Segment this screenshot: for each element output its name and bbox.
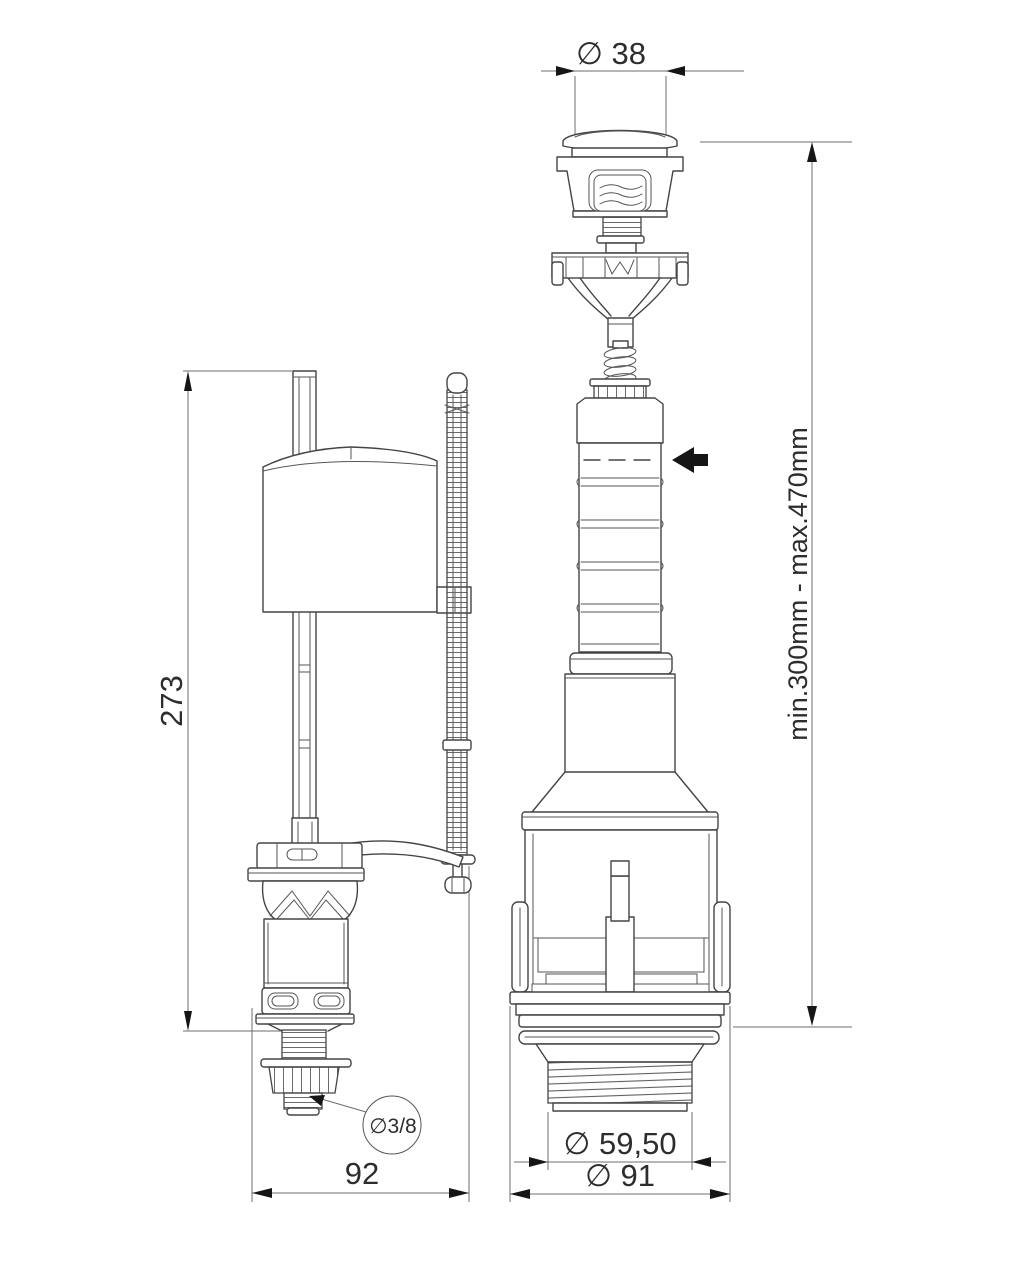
telescopic-tube bbox=[577, 398, 708, 652]
toilet-valves-technical-drawing: 273 92 ∅ 38 ∅ 59,50 ∅ 91 bbox=[0, 0, 1024, 1280]
adjustment-rod bbox=[441, 373, 475, 893]
dimension-38: ∅ 38 bbox=[541, 36, 744, 138]
dim-273-label: 273 bbox=[154, 675, 189, 727]
dim-59-50-label: ∅ 59,50 bbox=[563, 1126, 676, 1161]
inlet-thread bbox=[282, 1030, 326, 1059]
mounting-rosette bbox=[552, 253, 688, 348]
callout-3-8-label: ∅3/8 bbox=[369, 1115, 417, 1138]
cut-position-arrow-icon bbox=[672, 447, 708, 473]
push-button bbox=[557, 131, 683, 254]
dim-38-label: ∅ 38 bbox=[576, 36, 646, 71]
inlet-size-callout: ∅3/8 bbox=[309, 1095, 421, 1154]
dim-height-range-label: min.300mm - max.470mm bbox=[783, 427, 813, 741]
dim-91-label: ∅ 91 bbox=[585, 1158, 655, 1193]
valve-body bbox=[248, 818, 463, 1115]
flush-valve-body bbox=[510, 653, 730, 1111]
lock-nut bbox=[590, 379, 650, 398]
float-cup bbox=[263, 447, 471, 613]
fill-valve-view: ∅3/8 bbox=[248, 371, 475, 1154]
outlet-thread bbox=[548, 1062, 692, 1103]
flush-valve-view bbox=[510, 131, 730, 1112]
dim-92-label: 92 bbox=[345, 1156, 379, 1191]
technical-drawing-page: 273 92 ∅ 38 ∅ 59,50 ∅ 91 bbox=[0, 0, 1024, 1280]
dimension-height-range: min.300mm - max.470mm bbox=[700, 142, 852, 1027]
